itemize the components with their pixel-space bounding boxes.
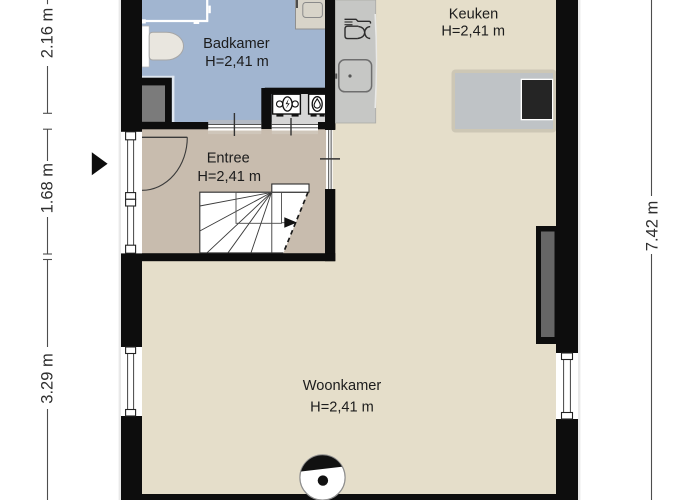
svg-text:H=2,41 m: H=2,41 m — [310, 400, 374, 416]
svg-text:1.68 m: 1.68 m — [38, 163, 56, 213]
svg-text:3.29 m: 3.29 m — [38, 353, 56, 403]
svg-text:2.16 m: 2.16 m — [38, 8, 56, 58]
svg-text:H=2,41 m: H=2,41 m — [205, 54, 269, 70]
svg-text:Keuken: Keuken — [449, 6, 499, 22]
svg-text:Woonkamer: Woonkamer — [303, 378, 382, 394]
svg-text:H=2,41 m: H=2,41 m — [197, 169, 261, 185]
svg-text:Entree: Entree — [207, 151, 250, 167]
svg-text:Badkamer: Badkamer — [203, 36, 270, 52]
svg-text:H=2,41 m: H=2,41 m — [441, 24, 505, 40]
svg-text:7.42 m: 7.42 m — [644, 201, 662, 251]
